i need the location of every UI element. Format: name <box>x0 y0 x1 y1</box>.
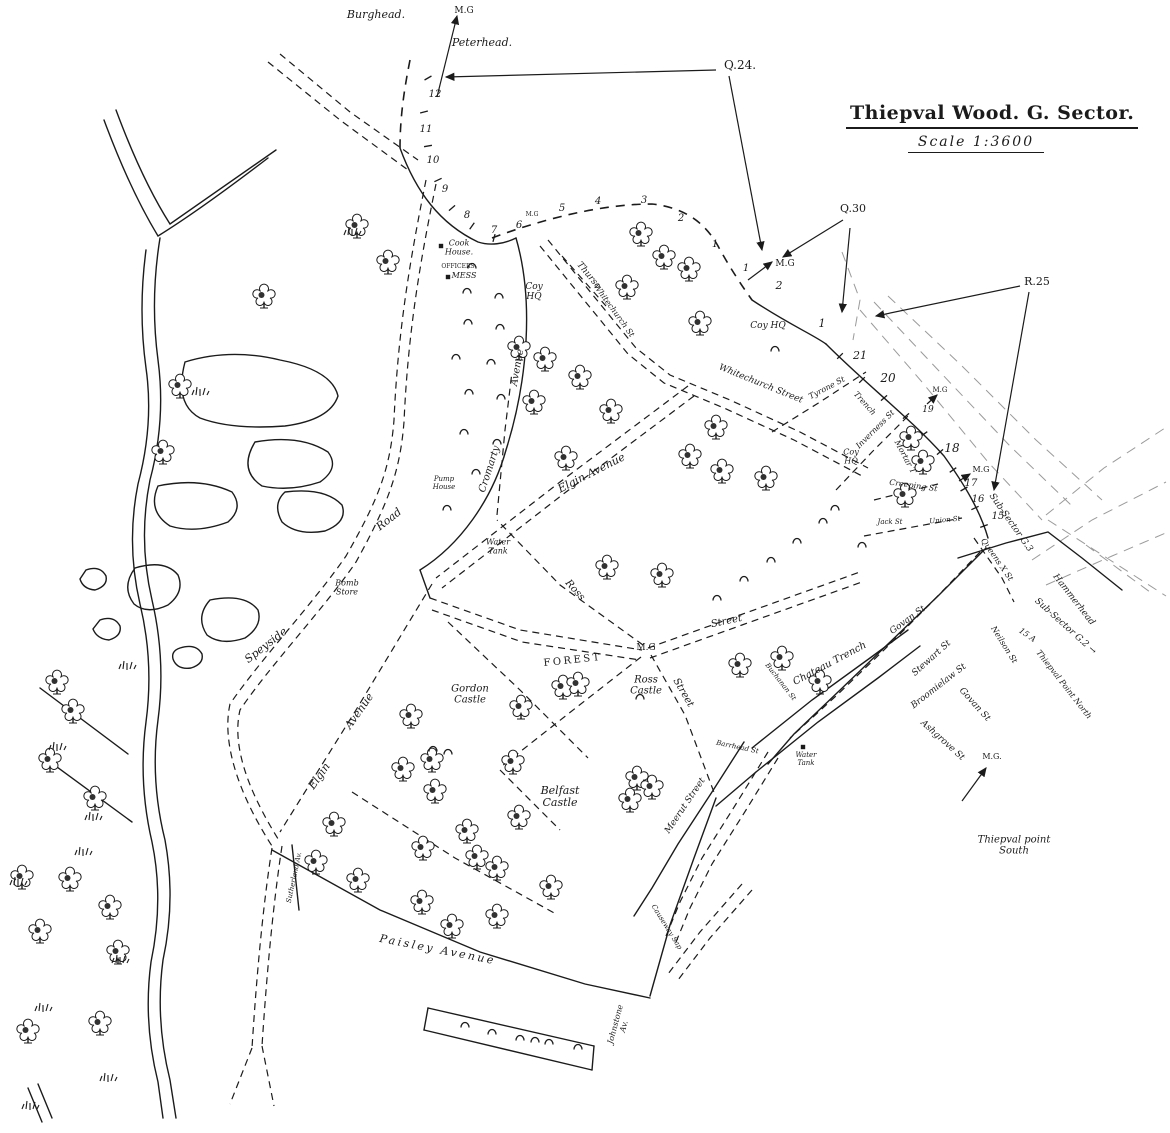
arrow-q24-west <box>446 70 716 77</box>
faint-track-line <box>874 302 1072 506</box>
arrow-q30-west <box>783 220 843 257</box>
label-elgin-avenue-2a: Elgin <box>305 760 333 792</box>
tree-icon <box>678 257 700 281</box>
tree-icon <box>630 222 652 246</box>
shelter-icon <box>493 440 501 445</box>
arrow-r25-south <box>994 292 1029 490</box>
label-ross-street-2: Street <box>710 613 744 631</box>
label-cook-house: CookHouse. <box>444 239 473 257</box>
faint-track-line <box>1032 482 1166 560</box>
trench-solid-line <box>400 148 516 244</box>
label-q30: Q.30 <box>840 202 866 215</box>
label-peterhead: Peterhead. <box>451 36 512 49</box>
label-mg-south: M.G. <box>982 752 1001 761</box>
tree-icon <box>392 757 414 781</box>
label-trench: Trench <box>852 390 878 417</box>
trench-solid-line <box>424 1008 428 1030</box>
tree-icon <box>456 819 478 843</box>
trench-tick <box>470 223 475 230</box>
trench-tick <box>424 145 432 146</box>
label-elgin-avenue-2b: Avenue <box>342 690 377 732</box>
road-dashed-line <box>772 372 866 432</box>
trench-tick <box>434 178 441 181</box>
label-johnstone-av: JohnstoneAv. <box>605 1003 633 1049</box>
arrow-q24-south <box>729 76 762 250</box>
tree-icon <box>17 1019 39 1043</box>
grass-icon <box>119 661 136 670</box>
tree-icon <box>412 836 434 860</box>
label-ashgrove-st: Ashgrove St <box>918 718 967 763</box>
shelter-icon <box>461 1023 469 1028</box>
label-govan-st-1: Govan St <box>888 604 928 637</box>
label-paisley-avenue: Paisley Avenue <box>377 932 497 968</box>
tree-icon <box>441 914 463 938</box>
road-dashed-line <box>678 890 752 980</box>
label-water-tank-1: WaterTank <box>486 538 511 556</box>
label-mg-19: M.G <box>933 386 948 394</box>
trench-tick <box>425 76 432 80</box>
labels-layer: Burghead.M.GPeterhead.Q.24.Q.30R.2512111… <box>242 6 1098 1049</box>
label-post-18: 18 <box>944 441 960 455</box>
label-whitechurch-st-2: Whitechurch Street <box>717 363 804 406</box>
label-belfast-castle: BelfastCastle <box>540 784 580 809</box>
label-post-16: 16 <box>972 494 985 505</box>
label-q24: Q.24. <box>724 58 756 72</box>
river-line <box>182 354 338 427</box>
shelter-icon <box>531 1038 539 1043</box>
tree-icon <box>689 311 711 335</box>
arrow-mg-19 <box>927 395 937 404</box>
trench-solid-line <box>420 570 430 598</box>
river-line <box>173 646 203 668</box>
label-post-5: 5 <box>559 203 565 214</box>
label-mess: MESS <box>451 271 477 280</box>
label-thiepval-point-south: Thiepval pointSouth <box>978 835 1052 857</box>
tree-icon <box>711 459 733 483</box>
river-line <box>128 565 180 610</box>
label-union-st: Union St <box>929 515 961 526</box>
label-sub-sector-g3: Sub-Sector G.3 <box>987 492 1035 554</box>
arrow-mg-south <box>962 768 986 801</box>
shelter-icon <box>444 750 452 755</box>
river-line <box>202 598 259 641</box>
label-speyside-road-b: Road <box>373 505 404 533</box>
shelter-icon <box>574 1045 582 1050</box>
tree-icon <box>755 466 777 490</box>
road-dashed-line <box>238 184 436 842</box>
tree-icon <box>99 895 121 919</box>
tree-icon <box>729 653 751 677</box>
shelter-icon <box>472 470 480 475</box>
tree-icon <box>619 788 641 812</box>
tree-icon <box>555 446 577 470</box>
tree-icon <box>323 812 345 836</box>
road-dashed-line <box>230 1048 252 1104</box>
shelter-icon <box>464 320 472 325</box>
label-water-tank-2: WaterTank <box>795 751 817 767</box>
shelter-icon <box>740 577 748 582</box>
tree-icon <box>107 940 129 964</box>
shelter-icon <box>496 325 504 330</box>
label-forest-street-2: Street <box>671 676 697 710</box>
faint-track-line <box>1046 428 1165 515</box>
label-post-2b: 2 <box>775 279 783 292</box>
label-meerut-street: Meerut Street <box>663 776 708 836</box>
tree-icon <box>616 275 638 299</box>
label-mg-top: M.G <box>454 6 473 16</box>
label-r25: R.25 <box>1024 275 1050 288</box>
label-post-1c: 1 <box>819 317 826 330</box>
label-ross-street-1: Ross <box>562 577 587 603</box>
building-square <box>446 275 450 279</box>
road-dashed-line <box>432 610 640 660</box>
grass-icon <box>35 1003 52 1012</box>
label-post-8: 8 <box>464 210 470 221</box>
arrow-r25-west <box>876 286 1020 316</box>
shelter-icon <box>713 596 721 601</box>
road-dashed-line <box>280 54 418 160</box>
label-mg-crossroads: M.G <box>636 643 655 653</box>
label-point-15a: 15 A <box>1017 626 1037 644</box>
road-dashed-line <box>668 884 742 974</box>
trench-solid-line <box>592 1046 594 1070</box>
grass-icon <box>192 387 209 396</box>
label-govan-st-2: Govan St <box>957 686 992 724</box>
shelter-icon <box>819 519 827 524</box>
map-page: Burghead.M.GPeterhead.Q.24.Q.30R.2512111… <box>0 0 1170 1133</box>
label-cromarty-avenue-a: Cromarty <box>477 444 503 494</box>
tree-icon <box>59 867 81 891</box>
label-coy-hq-2: Coy HQ <box>750 321 786 331</box>
label-ross-castle: RossCastle <box>630 675 662 697</box>
road-dashed-line <box>650 582 862 658</box>
river-line <box>132 250 163 1118</box>
shelter-icon <box>516 1036 524 1041</box>
tree-icon <box>46 670 68 694</box>
tree-icon <box>486 904 508 928</box>
tree-icon <box>11 865 33 889</box>
trench-tick <box>449 205 455 210</box>
river-line <box>278 491 344 532</box>
tree-icon <box>569 365 591 389</box>
label-post-10: 10 <box>427 155 440 166</box>
tree-icon <box>377 250 399 274</box>
map-title: Thiepval Wood. G. Sector. <box>846 102 1138 129</box>
river-line <box>154 483 237 530</box>
label-mg-post6: M.G <box>526 211 539 218</box>
label-officers: OFFICERS <box>441 263 474 270</box>
road-dashed-line <box>497 372 512 515</box>
label-neilson-st: Neilson St <box>989 624 1020 666</box>
label-thiepval-point-north: Thiepval Point North <box>1034 648 1093 720</box>
shelter-icon <box>460 430 468 435</box>
grass-icon <box>75 847 92 856</box>
shelter-icon <box>771 347 779 352</box>
tree-icon <box>651 563 673 587</box>
river-marsh-layer <box>80 110 343 1118</box>
shelter-icon <box>831 506 839 511</box>
tree-icon <box>347 868 369 892</box>
label-post-11: 11 <box>420 124 433 135</box>
map-title-block: Thiepval Wood. G. Sector. Scale 1:3600 <box>846 102 1106 153</box>
tree-icon <box>534 347 556 371</box>
road-dashed-line <box>676 758 778 942</box>
arrow-mg-peterhead <box>437 16 457 97</box>
shelter-icon <box>545 1040 553 1045</box>
road-dashed-line <box>268 62 408 170</box>
label-post-19: 19 <box>922 405 934 415</box>
tree-icon <box>705 415 727 439</box>
river-line <box>80 568 106 590</box>
label-post-3: 3 <box>641 195 647 206</box>
shelter-icon <box>463 289 471 294</box>
shelter-icon <box>488 1030 496 1035</box>
tree-icon <box>29 919 51 943</box>
label-jack-st: Jack St <box>876 518 903 526</box>
river-line <box>104 120 268 236</box>
tree-icon <box>411 890 433 914</box>
tree-icon <box>424 779 446 803</box>
road-dashed-line <box>648 572 860 648</box>
shelter-icon <box>487 360 495 365</box>
label-mg-post1: M.G <box>775 259 794 269</box>
shelter-icon <box>767 558 775 563</box>
shelter-icon <box>465 390 473 395</box>
trench-solid-line <box>634 742 744 916</box>
label-queens-x-st: Queens X St <box>979 537 1015 584</box>
tree-icon <box>400 704 422 728</box>
road-dashed-line <box>262 1046 274 1106</box>
road-dashed-line <box>262 846 282 1046</box>
tree-icon <box>253 284 275 308</box>
trench-tick <box>420 111 428 113</box>
label-post-21: 21 <box>852 349 867 362</box>
tree-icon <box>508 805 530 829</box>
trench-solid-line <box>424 1030 592 1070</box>
building-square <box>801 745 805 749</box>
tree-icon <box>523 390 545 414</box>
label-coy-hq-1: CoyHQ <box>525 282 543 302</box>
road-dashed-line <box>430 598 642 650</box>
label-pump-house: PumpHouse <box>432 475 456 491</box>
label-gordon-castle: GordonCastle <box>451 684 489 706</box>
faint-tracks-layer <box>842 252 1168 596</box>
shelter-icon <box>793 539 801 544</box>
river-line <box>93 618 120 640</box>
trench-solid-line <box>752 630 908 748</box>
grass-icon <box>100 1073 117 1082</box>
building-square <box>439 244 443 248</box>
arrow-mg-post1 <box>748 262 772 280</box>
label-post-9: 9 <box>442 184 449 195</box>
label-post-6: 6 <box>516 220 523 231</box>
tree-icon <box>502 750 524 774</box>
label-post-20: 20 <box>879 371 896 385</box>
label-post-17: 17 <box>965 478 978 489</box>
label-coy-hq-3: CoyHQ <box>843 448 859 466</box>
label-mg-17: M.G <box>972 465 989 474</box>
river-line <box>116 110 276 224</box>
tree-icon <box>596 555 618 579</box>
river-line <box>248 440 333 489</box>
grass-icon <box>85 812 102 821</box>
label-post-4: 4 <box>594 196 601 207</box>
shelter-icon <box>443 506 451 511</box>
label-speyside-road-a: Speyside <box>242 624 290 665</box>
tree-icon <box>421 748 443 772</box>
shelter-icon <box>495 294 503 299</box>
label-inverness-st: Inverness St <box>853 408 896 451</box>
label-causeway-sap: Causeway Sap <box>650 903 684 951</box>
road-dashed-line <box>666 752 768 936</box>
trench-solid-line <box>38 1084 52 1118</box>
label-post-2: 2 <box>677 213 684 224</box>
road-dashed-line <box>651 655 715 795</box>
faint-track-line <box>842 252 860 340</box>
map-scale: Scale 1:3600 <box>908 134 1044 153</box>
label-forest-street-1: FOREST <box>543 652 602 669</box>
tree-icon <box>89 1011 111 1035</box>
road-dashed-line <box>252 848 272 1048</box>
frontline-dashes <box>400 60 410 148</box>
shelter-icon <box>452 355 460 360</box>
tree-icon <box>600 399 622 423</box>
tree-icon <box>169 374 191 398</box>
label-post-12: 12 <box>429 89 442 100</box>
label-post-1: 1 <box>712 239 718 250</box>
tree-icon <box>540 875 562 899</box>
tree-icon <box>679 444 701 468</box>
trench-solid-line <box>428 1008 594 1046</box>
trench-map: Burghead.M.GPeterhead.Q.24.Q.30R.2512111… <box>0 0 1170 1133</box>
tree-icon <box>346 214 368 238</box>
tree-icon <box>653 245 675 269</box>
label-post-7: 7 <box>491 225 498 236</box>
label-bomb-store: BombStore <box>334 579 358 597</box>
label-burghead: Burghead. <box>346 8 405 21</box>
shelter-icon <box>858 543 866 548</box>
shelter-icon <box>497 395 505 400</box>
label-post-1b: 1 <box>743 263 749 274</box>
